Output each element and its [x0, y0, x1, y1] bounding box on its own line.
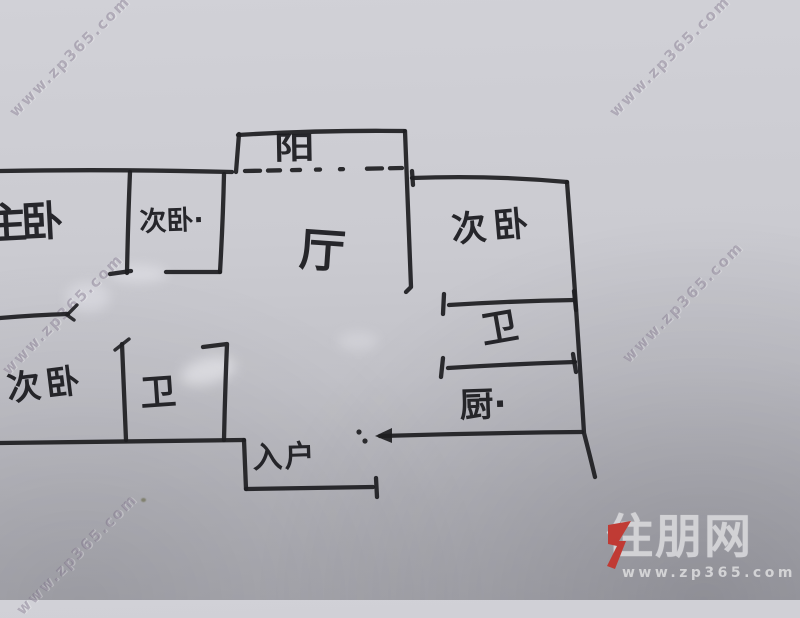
wall-bathroom-left: [203, 344, 227, 440]
room-label-bedroom-left: 次卧: [5, 363, 87, 406]
wall-bedroom-top-right: [220, 174, 224, 272]
wall-master-divider: [127, 172, 130, 273]
wall-tick: [441, 358, 443, 377]
wall-top-right: [412, 177, 567, 182]
room-label-entrance: 入户: [252, 442, 317, 474]
wall-bottom: [0, 440, 244, 443]
wall-bedroom-left-right: [122, 344, 126, 440]
wall-tick: [376, 478, 377, 497]
room-label-bathroom-right: 卫: [478, 307, 521, 350]
wall-arrowhead: [375, 428, 392, 443]
room-label-living-room: 厅: [298, 226, 347, 275]
room-label-bedroom-top: 次卧·: [139, 207, 204, 236]
room-label-bathroom-left: 卫: [139, 374, 177, 412]
wall-balcony-left: [236, 134, 239, 172]
room-label-master-bedroom: 主卧: [0, 200, 58, 246]
wall-living-right: [405, 131, 411, 292]
wall-tick: [443, 294, 444, 314]
room-label-balcony: 阳: [274, 133, 315, 165]
wall-bathroom-right-bottom: [448, 362, 575, 368]
wall-entrance-bottom: [246, 487, 373, 489]
wall-tick: [110, 271, 131, 274]
wall-tick: [574, 291, 576, 310]
wall-balcony-top: [238, 131, 404, 135]
room-label-bedroom-right: 次卧: [450, 207, 537, 249]
door-arrow: [67, 305, 77, 320]
door-dot: [356, 429, 361, 434]
wall-kitchen-bottom: [380, 432, 582, 436]
wall-entrance-left: [244, 440, 246, 489]
wall-tick: [573, 354, 576, 372]
balcony-door-dashed-line: [245, 168, 402, 171]
room-label-kitchen: 厨·: [459, 387, 507, 423]
door-dot: [362, 438, 367, 443]
wall-top-left: [0, 170, 232, 172]
wall-tick: [412, 171, 413, 185]
wall-master-bottom: [0, 314, 68, 318]
floorplan-photo: www.zp365.com www.zp365.com www.zp365.co…: [0, 0, 800, 600]
floorplan-drawing: [0, 0, 800, 600]
